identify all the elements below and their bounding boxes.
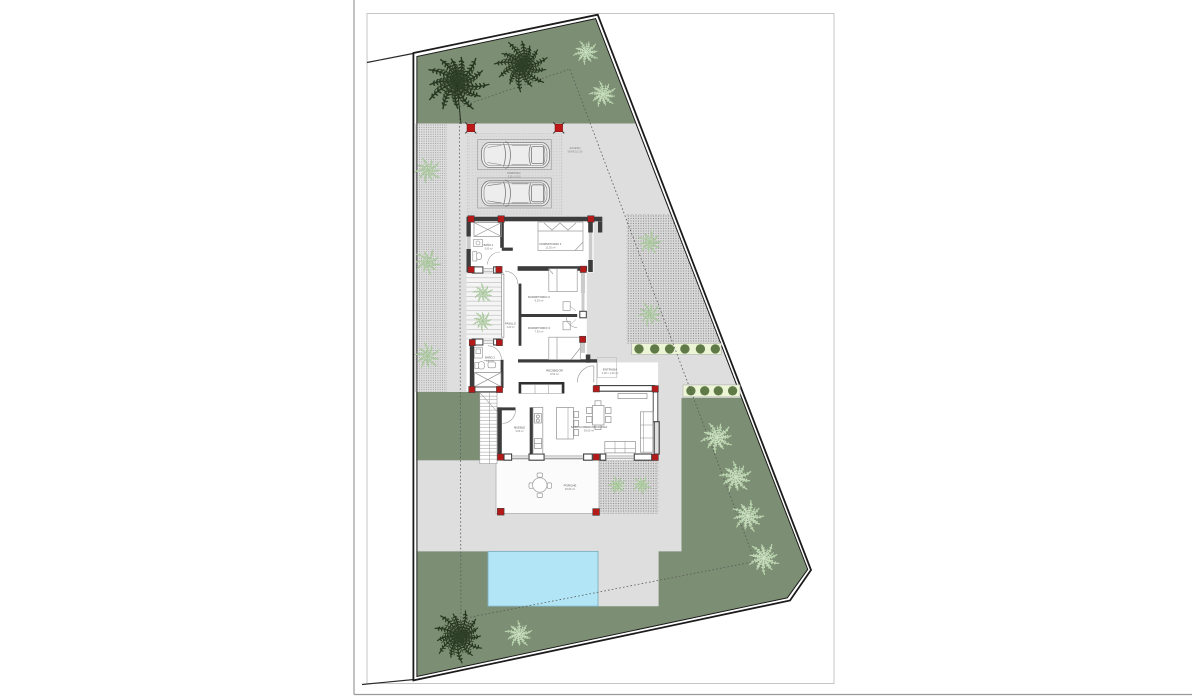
svg-text:DORMITORIO 1: DORMITORIO 1 bbox=[540, 242, 562, 246]
svg-text:4.00 m²: 4.00 m² bbox=[506, 326, 514, 329]
svg-text:ACCESO: ACCESO bbox=[570, 146, 581, 150]
svg-text:ENTRADA: ENTRADA bbox=[603, 368, 617, 372]
svg-text:DORMITORIO 2: DORMITORIO 2 bbox=[528, 295, 550, 299]
svg-text:SALA COMEDOR/COCINA: SALA COMEDOR/COCINA bbox=[571, 425, 608, 429]
svg-text:30.00 m²: 30.00 m² bbox=[565, 487, 575, 491]
svg-text:3.50 m²: 3.50 m² bbox=[484, 247, 492, 250]
svg-text:4.00 x 1.20 m²: 4.00 x 1.20 m² bbox=[602, 371, 619, 375]
svg-text:DORMITORIO 3: DORMITORIO 3 bbox=[528, 326, 550, 330]
svg-text:30.00 m²: 30.00 m² bbox=[584, 429, 594, 433]
svg-text:5.20 m²: 5.20 m² bbox=[515, 430, 523, 433]
svg-text:PARKING: PARKING bbox=[507, 171, 521, 175]
svg-text:9.00 m²: 9.00 m² bbox=[550, 372, 559, 376]
svg-text:VEHICULOS: VEHICULOS bbox=[568, 149, 583, 153]
svg-text:PORCHE: PORCHE bbox=[564, 484, 577, 488]
svg-text:9.20 m²: 9.20 m² bbox=[535, 299, 544, 303]
svg-text:7.30 m²: 7.30 m² bbox=[535, 330, 544, 334]
svg-text:RECIBIDOR: RECIBIDOR bbox=[546, 369, 564, 373]
svg-text:2.50 x 5.00: 2.50 x 5.00 bbox=[508, 175, 521, 179]
svg-text:11.20 m²: 11.20 m² bbox=[545, 246, 555, 250]
